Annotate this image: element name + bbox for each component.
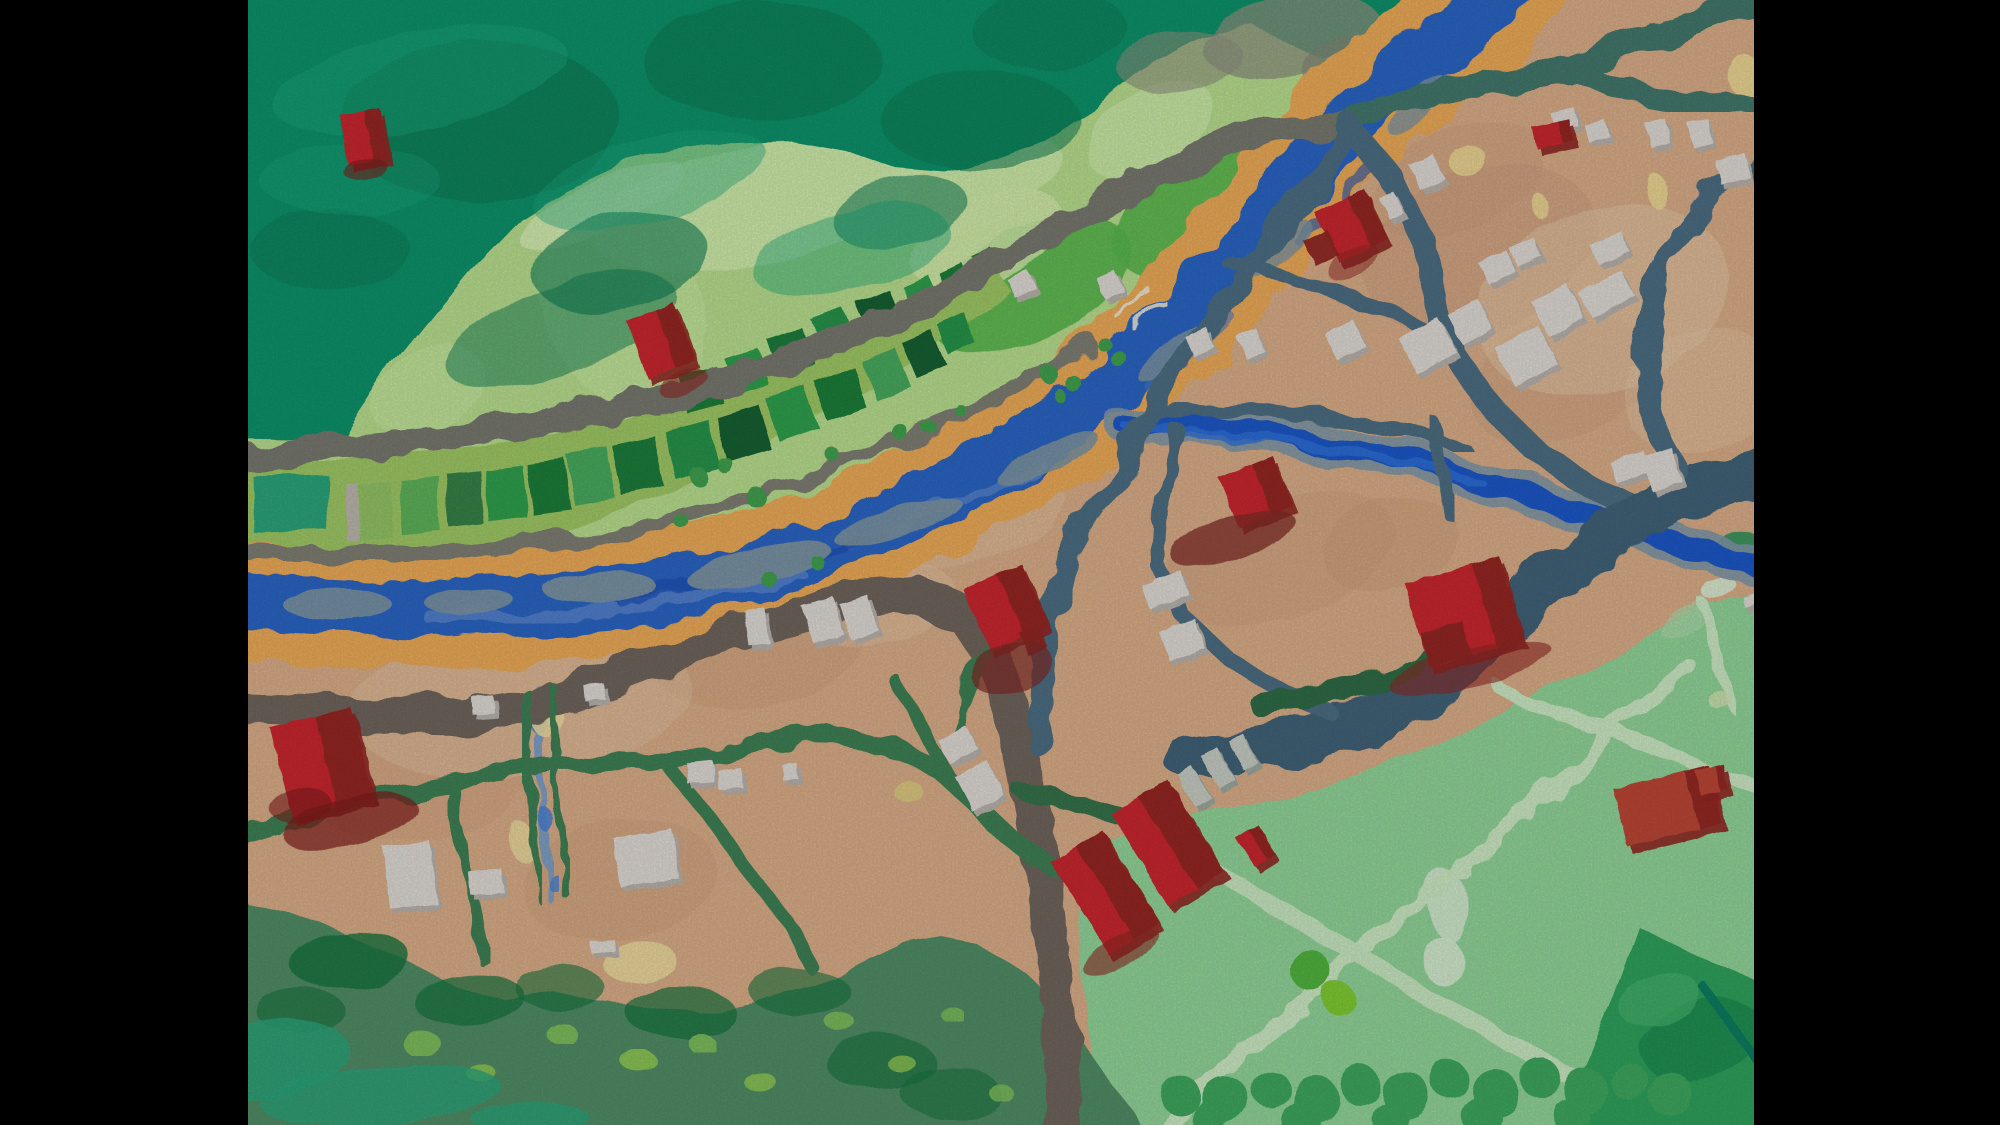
map-content bbox=[165, 0, 1795, 1125]
paper-grain bbox=[248, 0, 1754, 1125]
map-illustration bbox=[0, 0, 2000, 1125]
screenshot-root bbox=[0, 0, 2000, 1125]
